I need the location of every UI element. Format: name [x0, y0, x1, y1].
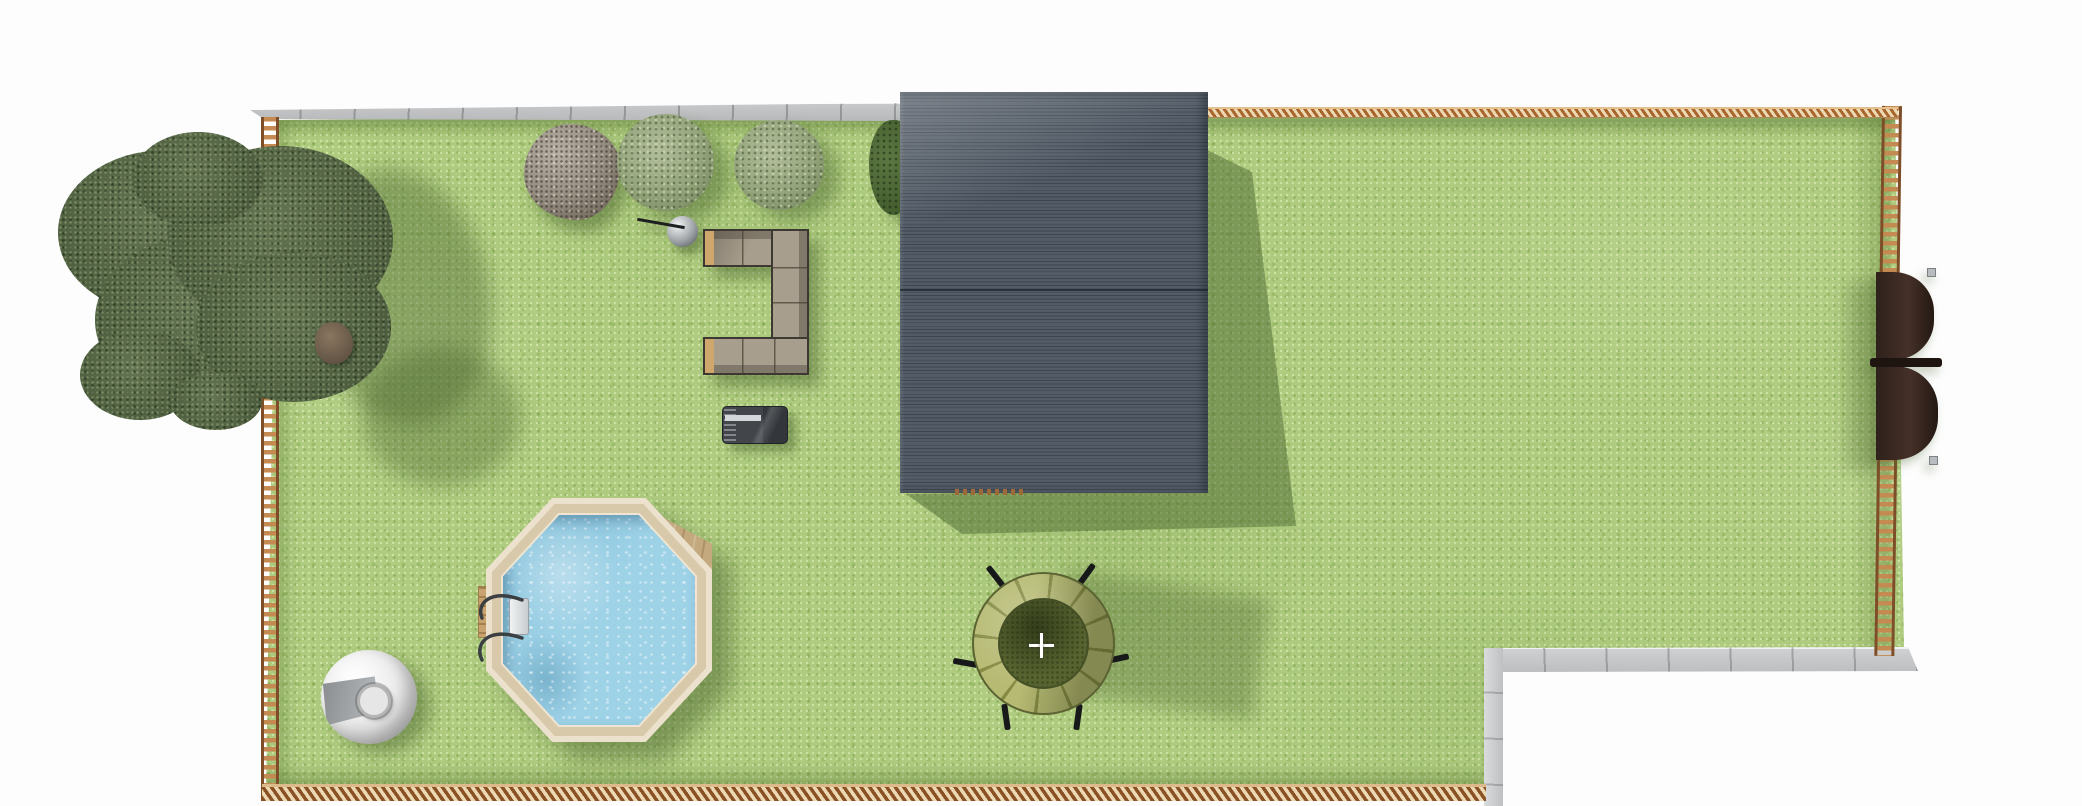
tree-shadow [362, 348, 520, 486]
barbecue-grill[interactable] [722, 406, 788, 444]
boulder[interactable] [524, 124, 620, 220]
trampoline-leg [1001, 704, 1011, 731]
privacy-screen-panel [1876, 366, 1938, 460]
house-roof[interactable] [900, 92, 1208, 493]
pool[interactable] [486, 498, 712, 742]
tree-trunk [315, 322, 353, 364]
privacy-screen-cap [1929, 456, 1938, 465]
shrub[interactable] [734, 120, 824, 210]
tree-canopy [170, 372, 262, 430]
fence-top[interactable] [1206, 107, 1898, 118]
garden-lamp[interactable] [667, 216, 698, 247]
path-corner-vertical[interactable] [1484, 648, 1503, 806]
fence-bottom[interactable] [262, 784, 1486, 801]
sphere-lounger[interactable] [321, 650, 417, 744]
selection-crosshair-icon [1029, 633, 1054, 658]
roof-ridge [900, 289, 1208, 291]
pool-water [503, 515, 695, 725]
privacy-screen-cap [1927, 268, 1936, 277]
crosshair-bar [1040, 633, 1043, 658]
lounger-ring [357, 684, 391, 718]
shrub[interactable] [617, 114, 714, 211]
pool-ladder-rails [470, 586, 528, 666]
sofa-bottom-arm [703, 337, 809, 375]
path-corner-horizontal[interactable] [1484, 647, 1918, 672]
path-top[interactable] [248, 102, 910, 122]
garden-plan-canvas[interactable] [0, 0, 2082, 806]
corner-sofa[interactable] [703, 229, 809, 375]
roof-gutter-detail [955, 489, 1027, 495]
privacy-screen-panel [1876, 272, 1934, 360]
privacy-screen[interactable] [1874, 270, 1940, 464]
privacy-screen-bar [1870, 358, 1942, 367]
tree-canopy [133, 132, 263, 227]
